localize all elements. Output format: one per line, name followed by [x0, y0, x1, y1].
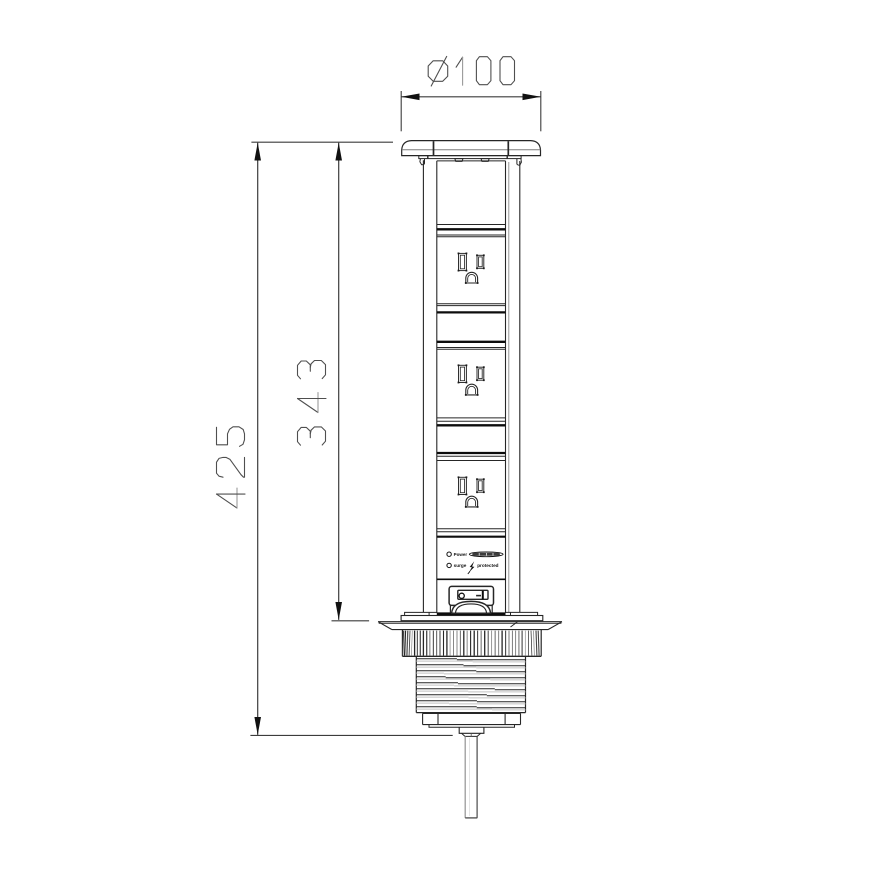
svg-text:surge: surge: [454, 563, 467, 568]
svg-text:Power: Power: [454, 552, 468, 557]
svg-text:protected: protected: [477, 563, 498, 568]
